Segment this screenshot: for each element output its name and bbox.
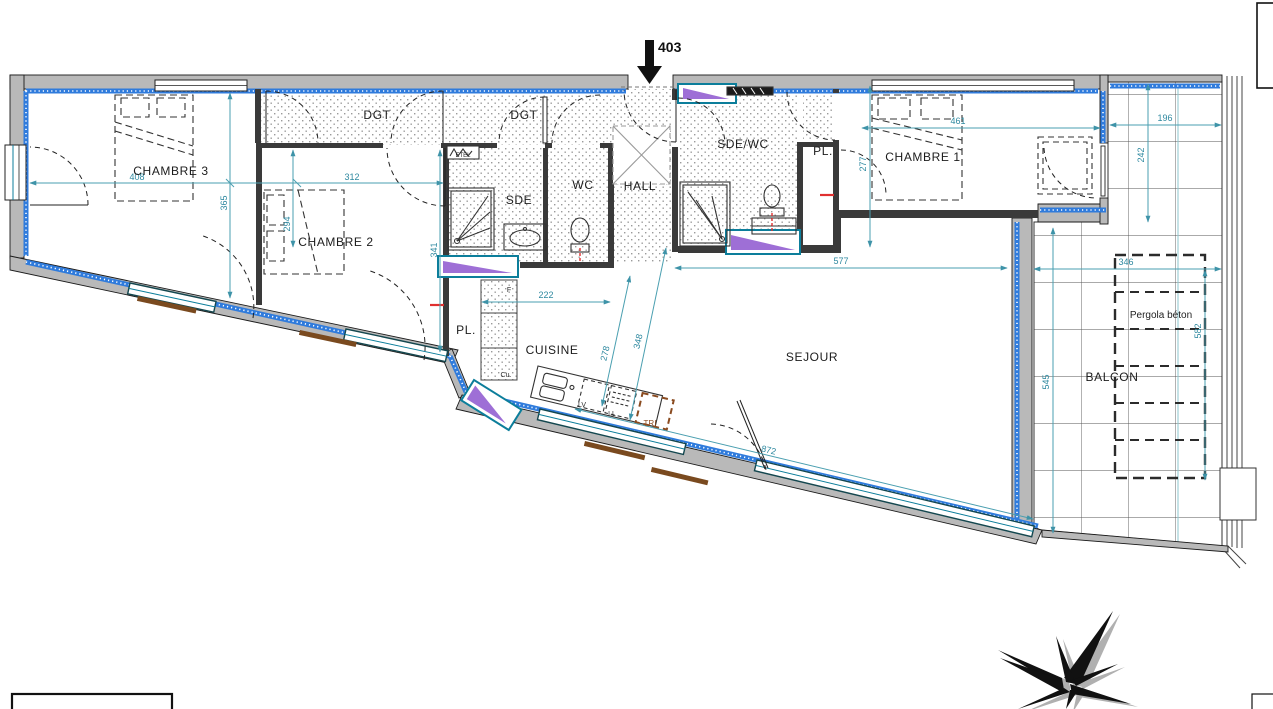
bed-chambre2 xyxy=(264,190,344,274)
hall-mat xyxy=(613,126,670,184)
room-label-pl-cuisine: PL. xyxy=(456,323,476,337)
room-label-balcon: BALCON xyxy=(1086,370,1139,384)
dim-balcon-depth: 545 xyxy=(1041,374,1051,389)
room-label-dgt-left: DGT xyxy=(363,108,390,122)
room-label-hall: HALL xyxy=(624,179,656,193)
apartment-number: 403 xyxy=(658,39,682,55)
room-label-chambre2: CHAMBRE 2 xyxy=(298,235,373,249)
dim-chambre2-depth: 294 xyxy=(282,216,292,231)
label-dishwasher: LV xyxy=(578,402,586,409)
window-sejour-facade xyxy=(754,460,1034,537)
room-label-dgt-right: DGT xyxy=(510,108,537,122)
room-label-wc: WC xyxy=(572,178,593,192)
floor-plan-drawing: 408 312 365 294 341 222 278 348 577 872 … xyxy=(0,0,1273,709)
radiator xyxy=(727,87,773,95)
balcony-pillar xyxy=(1220,468,1256,520)
room-label-chambre1: CHAMBRE 1 xyxy=(885,150,960,164)
dim-balcon-top-depth: 242 xyxy=(1136,147,1146,162)
dim-chambre1-depth: 277 xyxy=(858,156,868,171)
bed-chambre3 xyxy=(115,95,193,201)
label-cooking: Cu. xyxy=(501,372,512,379)
room-label-sde-wc: SDE/WC xyxy=(717,137,769,151)
dim-chambre2-east-depth: 341 xyxy=(429,242,439,257)
room-label-sejour: SEJOUR xyxy=(786,350,838,364)
dim-balcon-width: 346 xyxy=(1118,257,1133,267)
dim-chambre2-width: 312 xyxy=(344,172,359,182)
dim-sejour-width: 577 xyxy=(833,256,848,266)
dim-cuisine-depth: 278 xyxy=(599,345,612,362)
dim-cuisine-width: 222 xyxy=(538,290,553,300)
room-label-chambre3: CHAMBRE 3 xyxy=(133,164,208,178)
label-washer: LL xyxy=(608,411,616,418)
dim-cuisine-facade-depth: 348 xyxy=(632,333,645,350)
compass-icon xyxy=(998,611,1138,709)
dim-chambre3-depth: 365 xyxy=(219,195,229,210)
room-label-sde: SDE xyxy=(506,193,532,207)
label-waste: TRI xyxy=(644,419,657,428)
dim-balcon-right-depth: 582 xyxy=(1193,323,1203,338)
floor-plan-page: 408 312 365 294 341 222 278 348 577 872 … xyxy=(0,0,1273,709)
room-label-cuisine: CUISINE xyxy=(526,343,579,357)
dim-chambre1-width: 461 xyxy=(950,116,965,126)
dim-balcon-top-width: 196 xyxy=(1157,113,1172,123)
window-cuisine-west xyxy=(461,380,521,430)
label-pergola: Pergola béton xyxy=(1130,310,1192,321)
label-etel: ETEL xyxy=(455,153,471,159)
window-sde-south xyxy=(438,256,518,277)
chambre1-balcony-door-leaf xyxy=(1101,146,1105,196)
label-fridge: F xyxy=(507,287,511,294)
wardrobe-chambre1 xyxy=(1038,137,1092,194)
room-label-pl-hall: PL. xyxy=(813,144,833,158)
bed-chambre1 xyxy=(872,95,962,200)
